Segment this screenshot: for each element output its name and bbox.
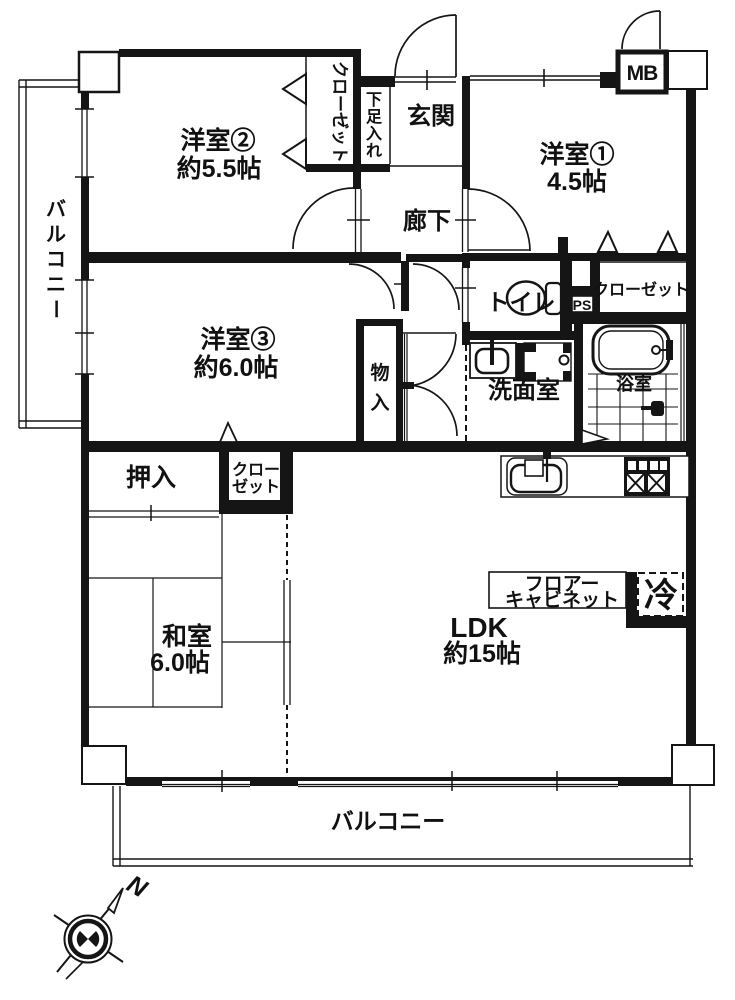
svg-text:洋室①: 洋室① bbox=[539, 140, 614, 169]
svg-text:4.5帖: 4.5帖 bbox=[547, 168, 607, 196]
svg-text:ニ: ニ bbox=[46, 274, 66, 296]
svg-text:コ: コ bbox=[46, 249, 66, 271]
svg-text:浴室: 浴室 bbox=[616, 373, 652, 394]
svg-text:LDK: LDK bbox=[450, 612, 508, 643]
svg-text:ゼット: ゼット bbox=[232, 477, 280, 496]
svg-text:MB: MB bbox=[627, 62, 658, 85]
svg-text:洗面室: 洗面室 bbox=[488, 376, 560, 404]
svg-text:クローゼット: クローゼット bbox=[330, 61, 350, 163]
svg-text:入: 入 bbox=[370, 392, 389, 414]
svg-text:洋室②: 洋室② bbox=[180, 126, 255, 155]
svg-text:足: 足 bbox=[366, 108, 383, 126]
svg-text:バ: バ bbox=[46, 198, 66, 221]
svg-text:クロー: クロー bbox=[232, 461, 280, 479]
svg-text:約5.5帖: 約5.5帖 bbox=[177, 154, 262, 183]
svg-text:廊下: 廊下 bbox=[403, 207, 451, 235]
svg-text:キャビネット: キャビネット bbox=[505, 589, 619, 611]
svg-text:入: 入 bbox=[366, 125, 382, 143]
svg-text:玄関: 玄関 bbox=[407, 102, 455, 130]
svg-text:和室: 和室 bbox=[162, 622, 212, 651]
svg-text:ル: ル bbox=[46, 224, 66, 246]
svg-text:約6.0帖: 約6.0帖 bbox=[194, 353, 279, 382]
svg-text:冷: 冷 bbox=[644, 577, 678, 615]
svg-text:クローゼット: クローゼット bbox=[593, 280, 689, 299]
svg-text:PS: PS bbox=[573, 297, 592, 313]
svg-text:洋室③: 洋室③ bbox=[200, 325, 275, 354]
svg-text:トイレ: トイレ bbox=[487, 289, 556, 315]
svg-text:6.0帖: 6.0帖 bbox=[150, 649, 210, 677]
svg-text:物: 物 bbox=[370, 361, 389, 384]
svg-text:約15帖: 約15帖 bbox=[443, 639, 521, 668]
svg-text:押入: 押入 bbox=[126, 464, 176, 492]
svg-text:ー: ー bbox=[44, 299, 66, 319]
svg-text:れ: れ bbox=[366, 142, 382, 160]
svg-text:バルコニー: バルコニー bbox=[331, 808, 446, 834]
svg-text:下: 下 bbox=[366, 92, 382, 109]
